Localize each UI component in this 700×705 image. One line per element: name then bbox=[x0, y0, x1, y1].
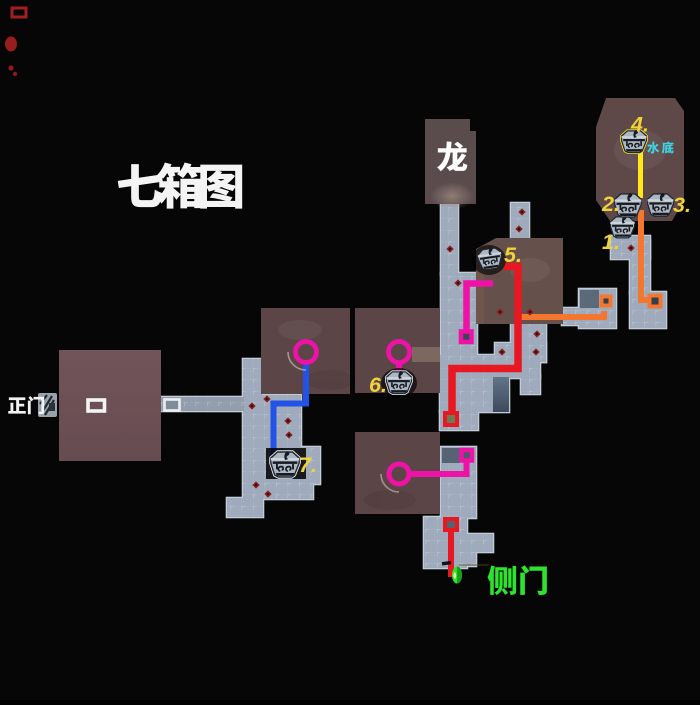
svg-text:2.: 2. bbox=[601, 192, 620, 216]
svg-text:1.: 1. bbox=[602, 230, 620, 254]
svg-text:3.: 3. bbox=[673, 193, 691, 217]
svg-text:4.: 4. bbox=[630, 113, 649, 137]
svg-text:7.: 7. bbox=[299, 453, 317, 477]
svg-text:6.: 6. bbox=[369, 373, 387, 397]
svg-text:5.: 5. bbox=[504, 243, 522, 267]
